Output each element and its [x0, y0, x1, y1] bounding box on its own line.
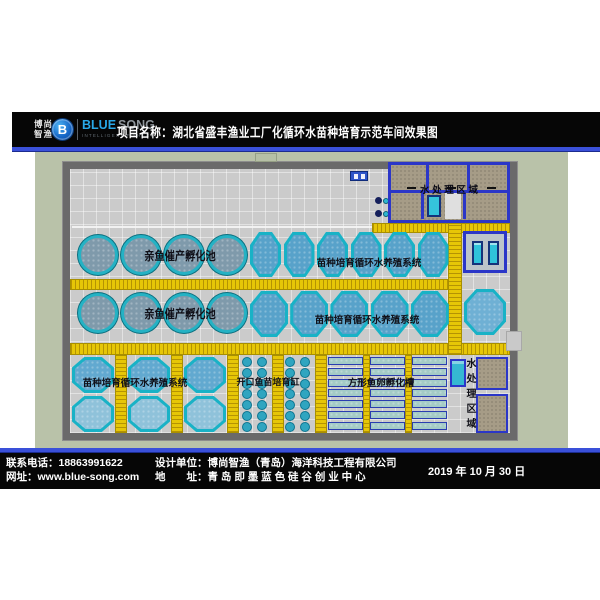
- hatching-trough: [412, 411, 447, 419]
- water-treatment-area: 水 处 理 区 域: [388, 162, 510, 223]
- pump-icon: [375, 197, 389, 204]
- logo-divider: [77, 119, 78, 140]
- fry-tank: [285, 389, 295, 399]
- fry-tank: [300, 422, 310, 432]
- treatment-tank: [427, 195, 441, 217]
- octagonal-tank: [284, 232, 315, 277]
- top-wall-door: [255, 153, 277, 162]
- octagonal-tank: [464, 289, 506, 335]
- facility-plan: 水 处 理 区 域 水处理区域 亲鱼催产孵化池: [63, 162, 517, 440]
- room-wall: [463, 193, 466, 219]
- fry-tank: [300, 411, 310, 421]
- fry-tank: [242, 422, 252, 432]
- equipment-tank: [488, 241, 499, 265]
- fry-tank: [242, 411, 252, 421]
- footer-contact: 联系电话：18863991622 网址：www.blue-song.com: [6, 456, 139, 484]
- walkway: [272, 355, 284, 433]
- fry-tank: [242, 400, 252, 410]
- footer-design-unit: 设计单位：博尚智渔（青岛）海洋科技工程有限公司: [155, 456, 397, 470]
- treatment-room: [476, 394, 508, 433]
- fry-tank: [242, 389, 252, 399]
- page: 博尚 智渔 B BLUESONG INTELLIGENT FISHERY 项目名…: [0, 0, 600, 600]
- walkway: [363, 355, 370, 433]
- hatching-trough: [370, 400, 405, 408]
- hatching-trough: [412, 389, 447, 397]
- circular-tank: [78, 293, 118, 333]
- plan-canvas: 水 处 理 区 域 水处理区域 亲鱼催产孵化池: [35, 152, 568, 448]
- walkway: [405, 355, 412, 433]
- floor-joint-line: [72, 226, 372, 228]
- octagonal-tank: [250, 291, 288, 337]
- equipment-room: [463, 231, 507, 273]
- fry-tank: [285, 357, 295, 367]
- hatching-trough: [370, 411, 405, 419]
- equipment-tank: [472, 241, 483, 265]
- hatching-trough: [328, 422, 363, 430]
- circular-tank: [78, 235, 118, 275]
- hatching-trough: [370, 357, 405, 365]
- fry-tank: [257, 400, 267, 410]
- water-treatment-label: 水 处 理 区 域: [391, 182, 507, 196]
- fry-tank: [257, 422, 267, 432]
- hatching-trough: [412, 379, 447, 387]
- hatching-trough: [370, 422, 405, 430]
- hatching-trough: [328, 411, 363, 419]
- hatching-trough: [328, 400, 363, 408]
- room-wall: [421, 193, 424, 219]
- project-title: 项目名称：湖北省盛丰渔业工厂化循环水苗种培育示范车间效果图: [117, 122, 438, 141]
- octagonal-tank: [250, 232, 281, 277]
- hatching-trough: [412, 357, 447, 365]
- water-treatment-side-label: 水处理区域: [462, 358, 477, 433]
- fry-tank: [300, 389, 310, 399]
- bottom-octagon-label: 苗种培育循环水养殖系统: [80, 375, 190, 389]
- row2-octagon-label: 苗种培育循环水养殖系统: [312, 312, 422, 326]
- hatching-trough: [412, 422, 447, 430]
- header-bar: 博尚 智渔 B BLUESONG INTELLIGENT FISHERY 项目名…: [12, 112, 600, 147]
- footer-designer: 设计单位：博尚智渔（青岛）海洋科技工程有限公司 地 址：青 岛 即 墨 蓝 色 …: [155, 456, 397, 484]
- hatching-trough: [370, 389, 405, 397]
- fry-tank: [285, 411, 295, 421]
- hatching-trough: [412, 400, 447, 408]
- footer-bar: 联系电话：18863991622 网址：www.blue-song.com 设计…: [0, 453, 600, 489]
- fry-tank: [257, 411, 267, 421]
- hatching-trough: [412, 368, 447, 376]
- fry-tank: [300, 400, 310, 410]
- octagonal-tank: [72, 396, 114, 432]
- fry-tank-label: 开口鱼苗培育缸: [228, 375, 308, 388]
- fry-tank: [257, 357, 267, 367]
- octagonal-tank: [184, 357, 226, 393]
- hatching-trough: [328, 389, 363, 397]
- pump-icon: [375, 210, 389, 217]
- walkway: [448, 223, 462, 355]
- octagonal-tank: [128, 396, 170, 432]
- treatment-room: [476, 357, 508, 390]
- footer-date: 2019 年 10 月 30 日: [428, 463, 525, 479]
- treatment-doorway: [445, 193, 461, 219]
- walkway: [227, 355, 239, 433]
- hatching-trough: [328, 357, 363, 365]
- octagonal-tank: [184, 396, 226, 432]
- wall-sign: [350, 171, 368, 181]
- footer-website: 网址：www.blue-song.com: [6, 470, 139, 484]
- walkway: [70, 279, 450, 290]
- walkway: [315, 355, 327, 433]
- walkway: [171, 355, 183, 433]
- fry-tank: [300, 357, 310, 367]
- walkway: [70, 343, 510, 355]
- fry-tank: [242, 357, 252, 367]
- fry-tank: [285, 422, 295, 432]
- fry-tank: [257, 389, 267, 399]
- row2-circle-label: 亲鱼催产孵化池: [125, 305, 236, 322]
- row1-circle-label: 亲鱼催产孵化池: [125, 247, 236, 264]
- brand-blue-text: BLUE: [82, 118, 116, 132]
- footer-address: 地 址：青 岛 即 墨 蓝 色 硅 谷 创 业 中 心: [155, 470, 397, 484]
- row1-octagon-label: 苗种培育循环水养殖系统: [314, 255, 424, 269]
- walkway: [115, 355, 127, 433]
- fry-tank: [285, 400, 295, 410]
- egg-tray-label: 方形鱼卵孵化槽: [345, 375, 417, 389]
- footer-phone: 联系电话：18863991622: [6, 456, 139, 470]
- logo-b-badge-icon: B: [51, 118, 74, 141]
- right-wall-door: [506, 331, 522, 351]
